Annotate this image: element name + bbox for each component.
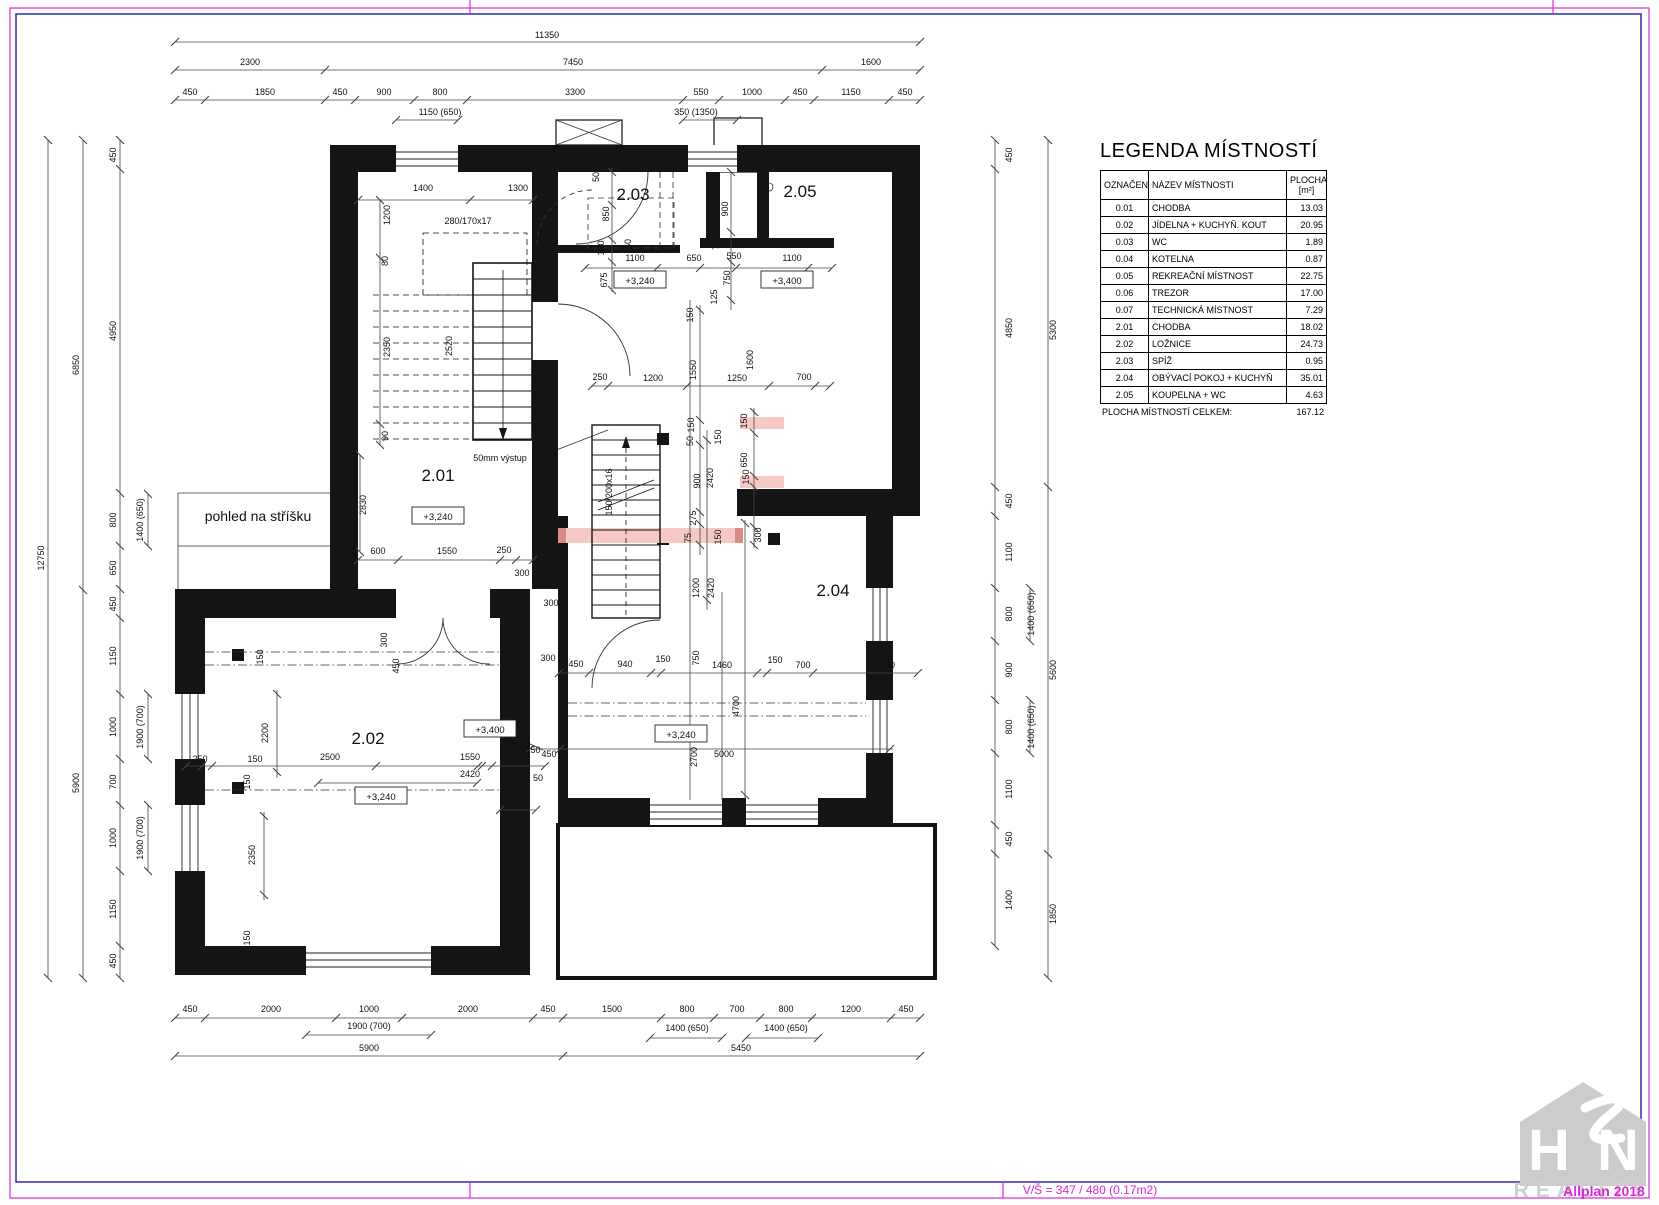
dimension-label: 1600 <box>875 660 895 670</box>
legend-col-area: PLOCHA [m²] <box>1287 171 1327 200</box>
legend-cell-name: TECHNICKÁ MÍSTNOST <box>1149 302 1287 319</box>
dimension-label: 150 <box>255 649 265 664</box>
dimension-label: 1400 <box>1004 890 1014 910</box>
legend-cell-name: OBÝVACÍ POKOJ + KUCHYŇ <box>1149 370 1287 387</box>
dimension-label: 4850 <box>1004 318 1014 338</box>
elevation-value: +3,240 <box>625 276 654 287</box>
legend-cell-designation: 0.03 <box>1101 234 1149 251</box>
room-label: 2.04 <box>816 581 849 600</box>
dimension-label: 450 <box>108 953 118 968</box>
legend-row: 2.02LOŽNICE24.73 <box>1101 336 1327 353</box>
dimension-label: 450 <box>568 659 583 669</box>
dimension-chain <box>526 745 894 753</box>
dimension-label: 800 <box>778 1004 793 1014</box>
legend-row: 0.06TREZOR17.00 <box>1101 285 1327 302</box>
legend-col-designation: OZNAČENÍ <box>1101 171 1149 200</box>
dimension-chain <box>354 196 537 204</box>
dimension-chain <box>144 801 152 875</box>
dimension-label: 900 <box>692 473 702 488</box>
elevation-value: +3,240 <box>366 792 395 803</box>
dimension-label: 5450 <box>731 1043 751 1053</box>
dimension-label: 700 <box>796 372 811 382</box>
legend-cell-name: CHODBA <box>1149 200 1287 217</box>
dimension-label: 2420 <box>706 578 716 598</box>
dimension-label: 2420 <box>705 468 715 488</box>
dimension-label: 150 <box>525 745 540 755</box>
elevation-value: +3,400 <box>772 276 801 287</box>
dimension-label: 650 <box>108 560 118 575</box>
dimension-chain <box>171 1014 924 1022</box>
legend-row: 0.02JÍDELNA + KUCHYŇ. KOUT20.95 <box>1101 217 1327 234</box>
dimension-label: 800 <box>108 512 118 527</box>
dimension-label: 100 <box>596 240 606 255</box>
elevation-value: +3,240 <box>666 730 695 741</box>
dimension-label: 50 <box>685 436 695 446</box>
dimension-label: 1100 <box>1004 542 1014 561</box>
legend-table: OZNAČENÍ NÁZEV MÍSTNOSTI PLOCHA [m²] 0.0… <box>1100 170 1327 404</box>
dimension-label: 700 <box>795 660 810 670</box>
dimension-chain <box>588 382 834 390</box>
dimension-label: 300 <box>514 568 529 578</box>
dimension-label: 450 <box>1004 831 1014 846</box>
legend-title: LEGENDA MÍSTNOSTÍ <box>1100 140 1326 163</box>
elevation-marker: +3,240 <box>614 271 666 288</box>
dimension-chain <box>171 96 924 104</box>
dimension-label: 600 <box>745 494 755 509</box>
dimension-label: 75 <box>683 533 693 543</box>
dimension-label: 800 <box>679 1004 694 1014</box>
dimension-label: 1400 (650) <box>135 498 145 542</box>
dimension-label: 750 <box>691 650 701 665</box>
dimension-label: 5600 <box>1048 660 1058 680</box>
dimension-label: 2350 <box>247 845 257 865</box>
legend-cell-designation: 2.02 <box>1101 336 1149 353</box>
legend-cell-designation: 0.01 <box>1101 200 1149 217</box>
dimension-label: 150 <box>655 654 670 664</box>
dimension-label: 1150 (650) <box>419 107 462 117</box>
dimension-label: 800 <box>1004 719 1014 734</box>
dimension-label: 900 <box>376 87 391 97</box>
dimension-label: 250 <box>192 754 207 764</box>
dimension-label: 1900 (700) <box>135 705 145 749</box>
dimension-label: 1000 <box>108 717 118 737</box>
dimension-label: 50 <box>533 773 543 783</box>
roof-view-note: pohled na stříšku <box>205 508 312 524</box>
legend-cell-designation: 0.02 <box>1101 217 1149 234</box>
dimension-label: 1100 <box>625 253 644 263</box>
legend-row: 0.04KOTELNA0.87 <box>1101 251 1327 268</box>
dimension-label: 150 <box>713 529 723 544</box>
dimension-label: 1460 <box>712 660 732 670</box>
legend-row: 0.05REKREAČNÍ MÍSTNOST22.75 <box>1101 268 1327 285</box>
legend-cell-area: 18.02 <box>1287 319 1327 336</box>
dimension-label: 1150 <box>108 899 118 918</box>
dimension-chain <box>991 136 999 950</box>
dimension-label: 1550 <box>688 360 698 380</box>
dimension-label: 600 <box>370 546 385 556</box>
dimension-label: 1400 (650) <box>665 1023 709 1033</box>
legend-cell-area: 1.89 <box>1287 234 1327 251</box>
elevation-marker: +3,400 <box>761 271 813 288</box>
dimension-label: 700 <box>108 774 118 789</box>
dimension-label: 450 <box>332 87 347 97</box>
dimension-label: 150 <box>741 469 751 484</box>
legend-cell-area: 0.95 <box>1287 353 1327 370</box>
legend-cell-area: 20.95 <box>1287 217 1327 234</box>
dimension-label: 280/170x17 <box>444 216 491 226</box>
legend-cell-designation: 0.06 <box>1101 285 1149 302</box>
dimension-label: 750 <box>722 270 732 285</box>
legend-cell-designation: 2.03 <box>1101 353 1149 370</box>
dimension-label: 2000 <box>261 1004 281 1014</box>
dimension-label: 1550 <box>460 752 480 762</box>
dimension-chain <box>741 519 749 799</box>
dimension-label: 450 <box>182 1004 197 1014</box>
dimension-chain <box>354 556 537 564</box>
dimension-label: 1900 (700) <box>135 816 145 860</box>
dimension-label: 900 <box>1004 662 1014 677</box>
dimension-label: 450 <box>108 596 118 611</box>
dimension-label: 1400 <box>413 183 433 193</box>
legend-row: 0.07TECHNICKÁ MÍSTNOST7.29 <box>1101 302 1327 319</box>
logo-letter-n: N <box>1597 1118 1639 1183</box>
elevation-marker: +3,400 <box>464 720 516 737</box>
dimension-chain <box>260 812 268 900</box>
dimension-label: 5900 <box>71 773 81 793</box>
dimension-chain <box>742 1034 822 1042</box>
dimension-label: 2420 <box>460 769 480 779</box>
legend-cell-designation: 0.04 <box>1101 251 1149 268</box>
dimension-label: 1250 <box>727 373 747 383</box>
legend-col-area-unit: [m²] <box>1299 185 1315 195</box>
walls-layer <box>175 145 920 975</box>
legend-cell-name: KOTELNA <box>1149 251 1287 268</box>
legend-cell-designation: 0.07 <box>1101 302 1149 319</box>
dimension-label: 650 <box>739 452 749 467</box>
legend-row: 2.05KOUPELNA + WC4.63 <box>1101 387 1327 404</box>
dimension-label: 1600 <box>745 350 755 370</box>
legend-row: 2.03SPÍŽ0.95 <box>1101 353 1327 370</box>
dimension-label: 450 <box>898 1004 913 1014</box>
logo-letter-h: H <box>1528 1118 1570 1183</box>
room-label: 2.03 <box>616 185 649 204</box>
dimension-label: 50 <box>508 752 518 762</box>
dimension-label: 12750 <box>36 545 46 570</box>
dimension-label: 1900 (700) <box>347 1021 391 1031</box>
watermark-text: Allplan 2018 <box>1563 1183 1645 1199</box>
legend-cell-designation: 2.01 <box>1101 319 1149 336</box>
dimension-label: 275 <box>688 510 698 525</box>
dimension-label: 1150 <box>841 87 860 97</box>
dimension-label: 80 <box>380 256 390 266</box>
dimension-label: 1150 <box>108 646 118 665</box>
dimension-label: 800 <box>432 87 447 97</box>
dimension-label: 150 <box>685 307 695 322</box>
dimension-label: 150 <box>247 754 262 764</box>
dimension-chain <box>182 762 549 770</box>
dimension-label: 125 <box>709 289 719 304</box>
dimension-label: 450 <box>1004 147 1014 162</box>
dimension-label: 1100 <box>1004 779 1014 798</box>
legend-cell-area: 7.29 <box>1287 302 1327 319</box>
legend-cell-area: 35.01 <box>1287 370 1327 387</box>
dimension-label: 2520 <box>444 336 454 356</box>
dimension-label: 150 <box>242 774 252 789</box>
legend-total-label: PLOCHA MÍSTNOSTÍ CELKEM: <box>1102 407 1232 417</box>
dimension-label: 550 <box>693 87 708 97</box>
dimension-label: 50mm výstup <box>473 453 527 463</box>
legend-cell-name: CHODBA <box>1149 319 1287 336</box>
scale-note: V/Š = 347 / 480 (0.17m2) <box>1023 1182 1157 1197</box>
dimension-label: 2200 <box>260 723 270 743</box>
dimension-label: 450 <box>540 1004 555 1014</box>
dimension-label: 1300 <box>508 183 528 193</box>
dimension-label: 450 <box>897 87 912 97</box>
legend-row: 2.01CHODBA18.02 <box>1101 319 1327 336</box>
legend-cell-area: 13.03 <box>1287 200 1327 217</box>
dimension-chain <box>79 136 87 982</box>
legend-col-area-label: PLOCHA <box>1290 175 1327 185</box>
dimension-label: 450 <box>391 658 401 673</box>
dimension-chain <box>144 490 152 550</box>
legend-cell-name: JÍDELNA + KUCHYŇ. KOUT <box>1149 217 1287 234</box>
legend-cell-name: WC <box>1149 234 1287 251</box>
dimension-chain <box>171 66 924 74</box>
dimension-label: 1400 (650) <box>1026 592 1036 636</box>
dimension-label: 1200 <box>382 205 392 225</box>
dimension-label: 5900 <box>359 1043 379 1053</box>
dimension-label: 300 <box>379 632 389 647</box>
elevation-marker: +3,240 <box>412 507 464 524</box>
legend-cell-designation: 2.04 <box>1101 370 1149 387</box>
legend-cell-area: 4.63 <box>1287 387 1327 404</box>
dimension-label: 300 <box>753 527 763 542</box>
dimension-label: 450 <box>108 147 118 162</box>
dimension-label: 1100 <box>782 253 801 263</box>
dimension-label: 5000 <box>714 749 734 759</box>
dimension-label: 150 <box>739 413 749 428</box>
dimension-label: 550 <box>505 798 520 808</box>
dimension-label: 1850 <box>1048 904 1058 924</box>
legend-cell-name: SPÍŽ <box>1149 353 1287 370</box>
legend-row: 0.01CHODBA13.03 <box>1101 200 1327 217</box>
dimension-label: 900 <box>720 201 730 216</box>
dimension-label: 11350 <box>535 30 559 40</box>
dimension-label: 75 <box>711 240 721 250</box>
dimension-label: 90 <box>380 431 390 441</box>
dimension-label: 940 <box>617 659 632 669</box>
dimension-label: 300 <box>540 653 555 663</box>
dimension-label: 450 <box>1004 493 1014 508</box>
page: { "frame": { "scale_text": "V/Š = 347 / … <box>0 0 1659 1200</box>
dimension-label: 4950 <box>108 321 118 341</box>
legend-cell-name: KOUPELNA + WC <box>1149 387 1287 404</box>
dimension-label: 5300 <box>1048 320 1058 340</box>
dimension-label: 150 <box>686 417 696 432</box>
legend-cell-area: 17.00 <box>1287 285 1327 302</box>
dimension-label: 2830 <box>358 495 368 515</box>
dimension-label: 1500 <box>602 1004 622 1014</box>
dimension-label: 2500 <box>320 752 340 762</box>
legend-cell-designation: 0.05 <box>1101 268 1149 285</box>
elevation-marker: +3,240 <box>655 725 707 742</box>
dimension-chain <box>646 1034 726 1042</box>
dimension-chain <box>144 690 152 763</box>
dimension-label: 4700 <box>731 696 741 716</box>
dimension-label: 150 <box>713 429 723 444</box>
legend-row: 2.04OBÝVACÍ POKOJ + KUCHYŇ35.01 <box>1101 370 1327 387</box>
legend-cell-name: TREZOR <box>1149 285 1287 302</box>
dimension-label: 7450 <box>563 57 583 67</box>
dimension-label: 1000 <box>359 1004 379 1014</box>
legend-cell-area: 22.75 <box>1287 268 1327 285</box>
dimension-chain <box>273 690 281 778</box>
dimension-label: 250 <box>592 372 607 382</box>
legend-total-value: 167.12 <box>1296 407 1324 417</box>
dimension-label: 675 <box>599 272 609 287</box>
elevation-value: +3,400 <box>475 725 504 736</box>
legend-cell-name: REKREAČNÍ MÍSTNOST <box>1149 268 1287 285</box>
legend-cell-designation: 2.05 <box>1101 387 1149 404</box>
dimension-chain <box>392 116 462 124</box>
dimension-label: 2350 <box>382 337 392 357</box>
dimension-label: 450 <box>541 749 556 759</box>
dimension-label: 850 <box>601 206 611 221</box>
dimension-label: 1850 <box>255 87 275 97</box>
dimension-label: 650 <box>686 253 701 263</box>
legend-total-row: PLOCHA MÍSTNOSTÍ CELKEM: 167.12 <box>1100 407 1326 417</box>
dimension-label: 6850 <box>71 355 81 375</box>
dimension-label: 50 <box>591 172 601 182</box>
dimension-label: 2000 <box>458 1004 478 1014</box>
dimension-label: 2300 <box>240 57 260 67</box>
dimension-label: 3300 <box>565 87 585 97</box>
dimension-label: 350 (1350) <box>674 107 718 117</box>
dimension-chain <box>376 196 384 449</box>
dimension-chain <box>116 136 124 982</box>
dimension-label: 1200 <box>841 1004 861 1014</box>
dimension-label: 150/200x16 <box>604 468 614 515</box>
dimension-label: 1400 (650) <box>764 1023 808 1033</box>
dimension-label: 800 <box>1004 606 1014 621</box>
dimension-chain <box>314 779 481 787</box>
elevation-marker: +3,240 <box>355 787 407 804</box>
dimension-label: 2700 <box>689 747 699 767</box>
legend: LEGENDA MÍSTNOSTÍ OZNAČENÍ NÁZEV MÍSTNOS… <box>1100 140 1326 417</box>
legend-cell-area: 24.73 <box>1287 336 1327 353</box>
floor-plan-canvas: H N REALITY V/Š = 347 / 480 (0.17m2) All… <box>0 0 1659 1200</box>
room-label: 2.01 <box>421 466 454 485</box>
dimension-label: 300 <box>543 598 558 608</box>
dimension-chain <box>171 1052 924 1060</box>
dimension-label: 1200 <box>643 373 663 383</box>
dimension-label: 1550 <box>437 546 457 556</box>
dimension-label: 150 <box>242 930 252 945</box>
dimension-label: 1000 <box>108 828 118 848</box>
dimension-label: 150 <box>767 655 782 665</box>
dimension-label: 700 <box>729 1004 744 1014</box>
dimension-label: 550 <box>726 251 741 261</box>
dimension-label: 1200 <box>691 578 701 598</box>
dimension-label: 450 <box>182 87 197 97</box>
legend-row: 0.03WC1.89 <box>1101 234 1327 251</box>
elevation-value: +3,240 <box>423 512 452 523</box>
dimension-label: 1400 (650) <box>1026 705 1036 749</box>
room-label: 2.02 <box>351 729 384 748</box>
legend-cell-area: 0.87 <box>1287 251 1327 268</box>
legend-cell-name: LOŽNICE <box>1149 336 1287 353</box>
dimension-chain <box>302 1031 435 1039</box>
dimension-label: 250 <box>496 545 511 555</box>
dimension-chain <box>1044 136 1052 982</box>
room-label: 2.05 <box>783 182 816 201</box>
legend-col-name: NÁZEV MÍSTNOSTI <box>1149 171 1287 200</box>
dimension-label: 1000 <box>742 87 762 97</box>
dimension-label: 1600 <box>861 57 881 67</box>
dimension-label: 450 <box>792 87 807 97</box>
dimension-label: 50 <box>623 239 633 249</box>
stair-central <box>592 425 660 618</box>
